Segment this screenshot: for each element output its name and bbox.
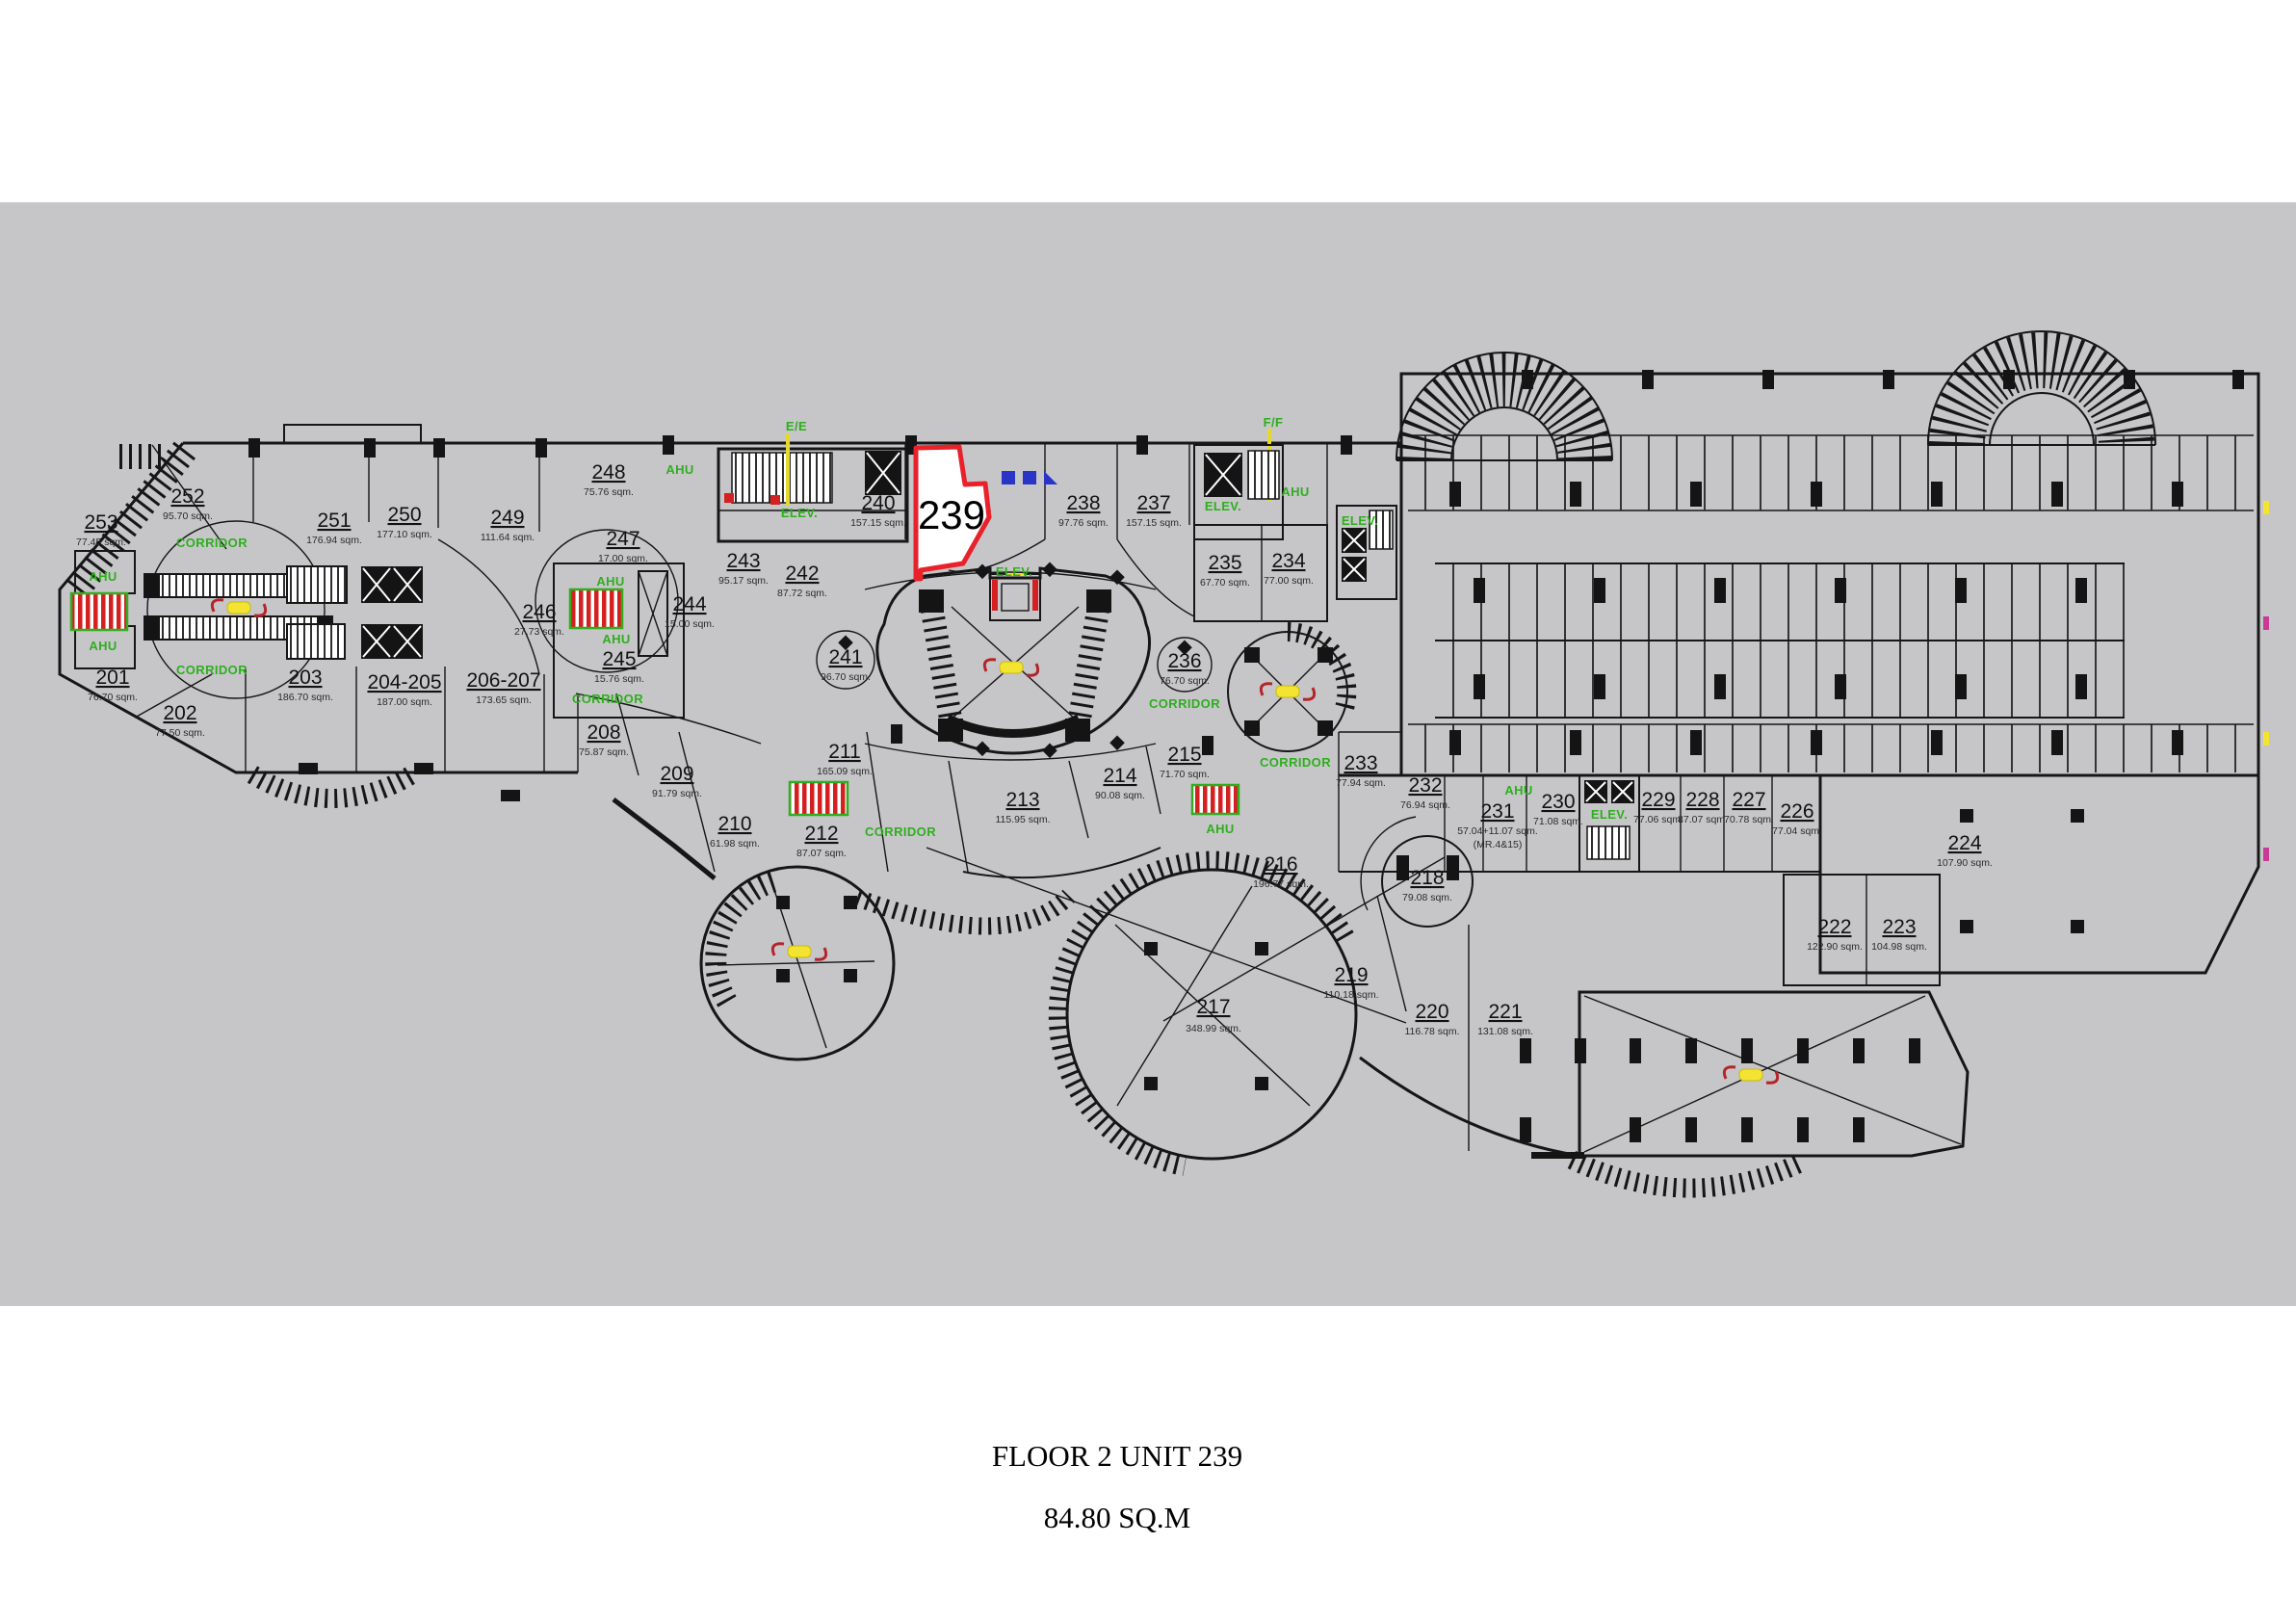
floor-plan-page: 239 CORRIDOR CORRIDOR CORRIDOR CORRIDOR …: [0, 0, 2296, 1622]
unit-247-area: 17.00 sqm.: [598, 553, 648, 564]
unit-239-number: 239: [918, 492, 985, 537]
unit-222-area: 122.90 sqm.: [1807, 941, 1863, 953]
unit-242-area: 87.72 sqm.: [777, 588, 827, 599]
unit-209-area: 91.79 sqm.: [652, 788, 702, 799]
unit-241-number: 241: [828, 646, 862, 668]
unit-245-area: 15.76 sqm.: [594, 673, 644, 685]
unit-249-area: 111.64 sqm.: [481, 532, 535, 543]
unit-217-area: 348.99 sqm.: [1186, 1023, 1241, 1034]
unit-202-number: 202: [163, 702, 196, 724]
unit-212-number: 212: [804, 823, 838, 845]
ahu-label: AHU: [1206, 822, 1234, 836]
unit-226-number: 226: [1780, 800, 1813, 823]
unit-218-number: 218: [1410, 867, 1444, 889]
unit-251-area: 176.94 sqm.: [306, 535, 362, 546]
unit-215-number: 215: [1167, 744, 1201, 766]
unit-250-area: 177.10 sqm.: [377, 529, 432, 540]
unit-230-number: 230: [1541, 791, 1575, 813]
ahu-label: AHU: [665, 462, 693, 477]
unit-252-area: 95.70 sqm.: [163, 510, 213, 522]
ahu-label: AHU: [1504, 783, 1532, 798]
unit-231-area: 57.04+11.07 sqm.: [1457, 825, 1538, 837]
unit-201-area: 76.70 sqm.: [88, 692, 138, 703]
corridor-label: CORRIDOR: [176, 536, 248, 550]
unit-216-area: 196.77 sqm.: [1253, 878, 1309, 890]
unit-228-number: 228: [1685, 789, 1719, 811]
unit-203-number: 203: [288, 667, 322, 689]
unit-227-number: 227: [1732, 789, 1765, 811]
floor-plan: 239 CORRIDOR CORRIDOR CORRIDOR CORRIDOR …: [0, 0, 2296, 1622]
unit-236-area: 76.70 sqm.: [1160, 675, 1210, 687]
unit-217-number: 217: [1196, 996, 1230, 1018]
unit-238-number: 238: [1066, 492, 1100, 514]
corridor-label: CORRIDOR: [572, 692, 643, 706]
unit-250-number: 250: [387, 504, 421, 526]
corridor-label: CORRIDOR: [1149, 696, 1220, 711]
unit-208-area: 75.87 sqm.: [579, 746, 629, 758]
unit-211-number: 211: [828, 741, 860, 763]
caption: FLOOR 2 UNIT 239 84.80 SQ.M: [992, 1439, 1242, 1534]
unit-204-205-area: 187.00 sqm.: [377, 696, 432, 708]
unit-237-number: 237: [1136, 492, 1170, 514]
unit-240-area: 157.15 sqm.: [850, 517, 906, 529]
unit-214-area: 90.08 sqm.: [1095, 790, 1145, 801]
caption-line1: FLOOR 2 UNIT 239: [992, 1439, 1242, 1473]
ahu-label: AHU: [89, 569, 117, 584]
unit-209-number: 209: [660, 763, 693, 785]
unit-237-area: 157.15 sqm.: [1126, 517, 1182, 529]
unit-236-number: 236: [1167, 650, 1201, 672]
unit-227-area: 70.78 sqm.: [1724, 814, 1774, 825]
unit-220-number: 220: [1415, 1001, 1448, 1023]
unit-202-area: 77.50 sqm.: [155, 727, 205, 739]
elev-label: ELEV.: [1342, 513, 1378, 528]
corridor-label: CORRIDOR: [1260, 755, 1331, 770]
unit-228-area: 87.07 sqm.: [1678, 814, 1728, 825]
unit-234-number: 234: [1271, 550, 1305, 572]
unit-248-area: 75.76 sqm.: [584, 486, 634, 498]
caption-line2: 84.80 SQ.M: [1044, 1501, 1190, 1534]
unit-215-area: 71.70 sqm.: [1160, 769, 1210, 780]
unit-244-number: 244: [672, 593, 706, 615]
ahu-label: AHU: [602, 632, 630, 646]
unit-219-number: 219: [1334, 964, 1368, 986]
unit-221-number: 221: [1488, 1001, 1522, 1023]
unit-253-number: 253: [84, 511, 117, 534]
unit-242-number: 242: [785, 562, 819, 585]
unit-233-area: 77.94 sqm.: [1336, 777, 1386, 789]
unit-210-number: 210: [717, 813, 751, 835]
unit-235-number: 235: [1208, 552, 1241, 574]
ff-label: F/F: [1264, 415, 1284, 430]
unit-224-area: 107.90 sqm.: [1937, 857, 1993, 869]
unit-248-number: 248: [591, 461, 625, 484]
unit-212-area: 87.07 sqm.: [796, 848, 847, 859]
unit-221-area: 131.08 sqm.: [1477, 1026, 1533, 1037]
unit-211-area: 165.09 sqm.: [817, 766, 873, 777]
unit-251-number: 251: [317, 510, 351, 532]
unit-206-207-area: 173.65 sqm.: [476, 694, 532, 706]
unit-223-area: 104.98 sqm.: [1871, 941, 1927, 953]
unit-213-area: 115.95 sqm.: [995, 814, 1050, 825]
unit-246-area: 27.73 sqm.: [514, 626, 564, 638]
unit-201-number: 201: [95, 667, 129, 689]
ee-label: E/E: [786, 419, 807, 433]
unit-243-area: 95.17 sqm.: [718, 575, 769, 587]
unit-204-205-number: 204-205: [367, 671, 441, 693]
unit-252-number: 252: [170, 485, 204, 508]
unit-210-area: 61.98 sqm.: [710, 838, 760, 850]
unit-249-number: 249: [490, 507, 524, 529]
unit-253-area: 77.45 sqm.: [76, 536, 126, 548]
unit-216-number: 216: [1264, 853, 1297, 876]
unit-229-number: 229: [1641, 789, 1675, 811]
unit-244-area: 15.00 sqm.: [665, 618, 715, 630]
unit-235-area: 67.70 sqm.: [1200, 577, 1250, 589]
unit-213-number: 213: [1005, 789, 1039, 811]
unit-231-area2: (MR.4&15): [1474, 839, 1523, 850]
unit-223-number: 223: [1882, 916, 1916, 938]
ahu-label: AHU: [1281, 484, 1309, 499]
unit-219-area: 110.18 sqm.: [1323, 989, 1378, 1001]
corridor-label: CORRIDOR: [865, 824, 936, 839]
unit-226-area: 77.04 sqm.: [1772, 825, 1822, 837]
unit-232-number: 232: [1408, 774, 1442, 797]
ahu-label: AHU: [89, 639, 117, 653]
unit-224-number: 224: [1947, 832, 1981, 854]
unit-232-area: 76.94 sqm.: [1400, 799, 1450, 811]
unit-218-area: 79.08 sqm.: [1402, 892, 1452, 903]
unit-238-area: 97.76 sqm.: [1058, 517, 1109, 529]
unit-240-number: 240: [861, 492, 895, 514]
unit-231-number: 231: [1480, 800, 1514, 823]
unit-234-area: 77.00 sqm.: [1264, 575, 1314, 587]
unit-229-area: 77.06 sqm.: [1633, 814, 1683, 825]
unit-220-area: 116.78 sqm.: [1404, 1026, 1459, 1037]
elev-label: ELEV.: [781, 506, 818, 520]
corridor-label: CORRIDOR: [176, 663, 248, 677]
unit-243-number: 243: [726, 550, 760, 572]
ahu-label: AHU: [596, 574, 624, 589]
unit-222-number: 222: [1817, 916, 1851, 938]
unit-203-area: 186.70 sqm.: [277, 692, 333, 703]
unit-206-207-number: 206-207: [466, 669, 540, 692]
unit-208-number: 208: [587, 721, 620, 744]
unit-245-number: 245: [602, 648, 636, 670]
unit-233-number: 233: [1344, 752, 1377, 774]
elev-label: ELEV.: [1591, 807, 1628, 822]
unit-246-number: 246: [522, 601, 556, 623]
elev-label: ELEV.: [1205, 499, 1241, 513]
unit-214-number: 214: [1103, 765, 1136, 787]
unit-241-area: 96.70 sqm.: [821, 671, 871, 683]
elev-label: ELEV.: [996, 564, 1032, 579]
unit-230-area: 71.08 sqm.: [1533, 816, 1583, 827]
unit-247-number: 247: [606, 528, 639, 550]
